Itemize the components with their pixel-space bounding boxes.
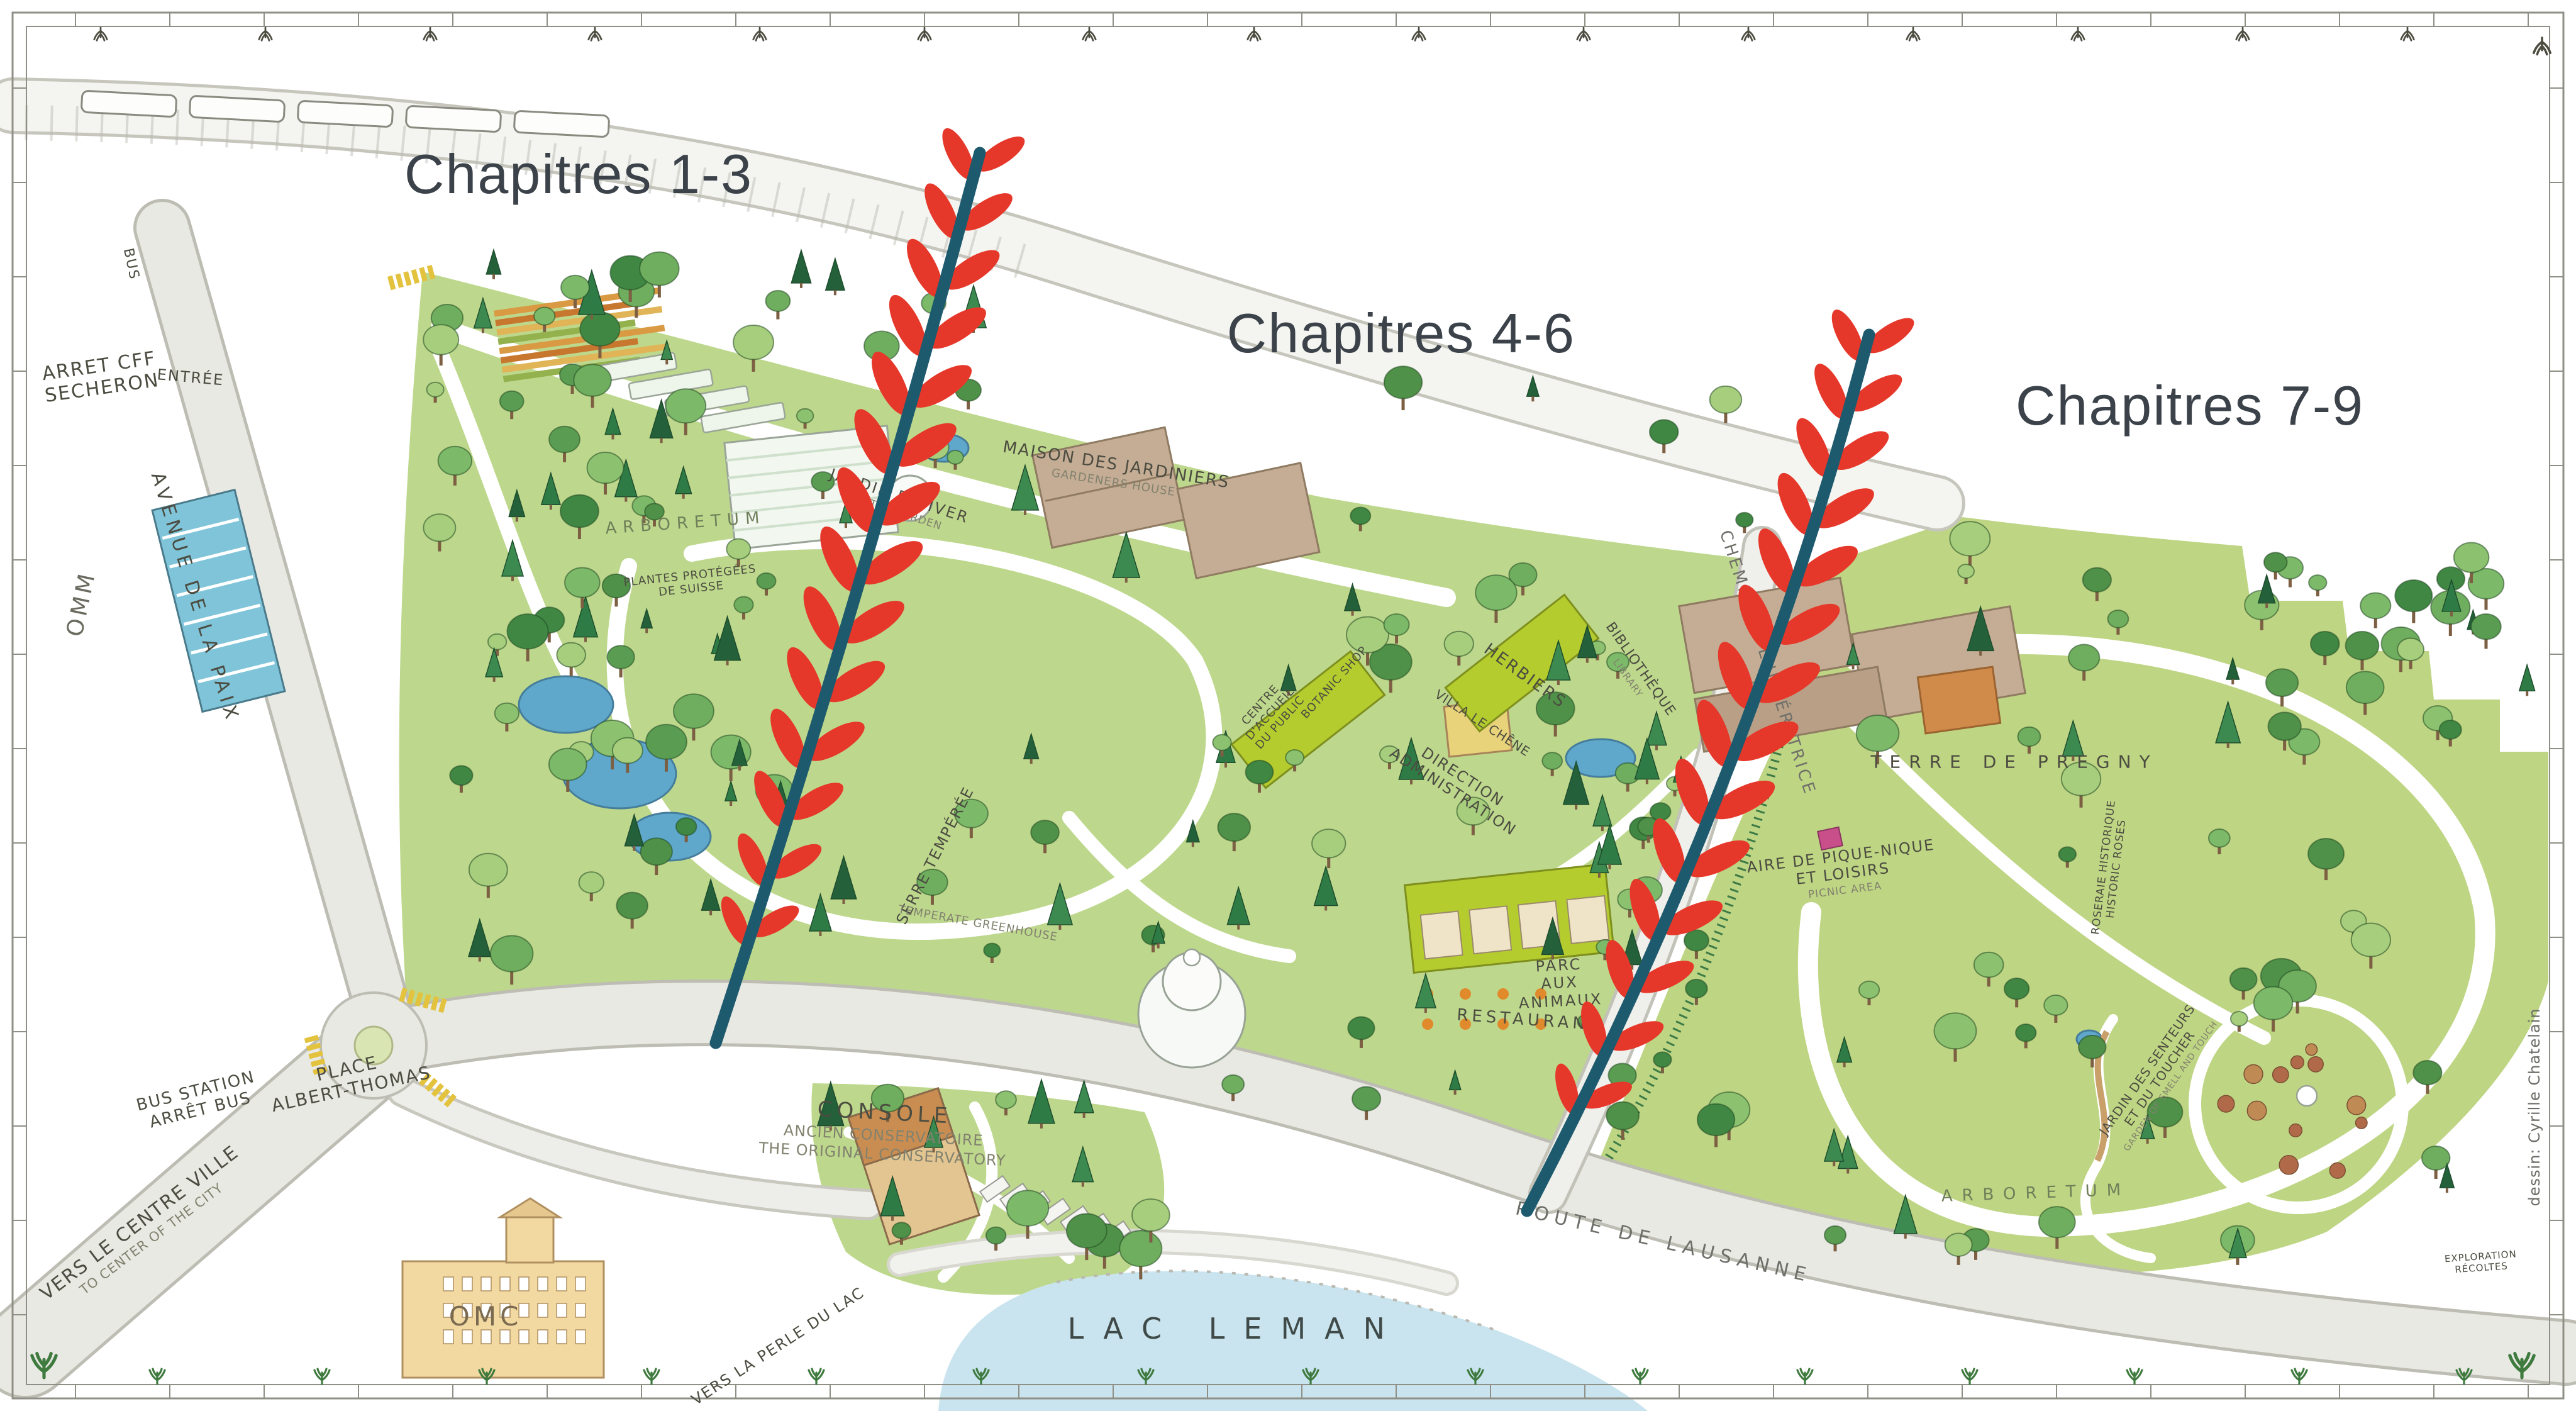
plant-sprig-icon <box>1633 1369 1648 1384</box>
plant-sprig-icon <box>589 28 601 40</box>
plant-sprig-icon <box>918 28 931 40</box>
plant-sprig-icon <box>2292 1369 2307 1384</box>
winter-garden-dome <box>887 476 933 521</box>
plant-sprig-icon <box>1962 1369 1977 1384</box>
roseraie-gazebo <box>2297 1086 2317 1106</box>
plant-sprig-icon <box>150 1369 165 1384</box>
plant-sprig-icon <box>2534 38 2550 54</box>
plant-sprig-icon <box>1083 28 1096 40</box>
plant-sprig-icon <box>314 1369 330 1384</box>
botanical-garden-map-page: ARRET CFFSECHERONBUSENTRÉEAVENUE DE LA P… <box>0 0 2576 1411</box>
plant-sprig-icon <box>1413 28 1425 40</box>
plant-sprig-icon <box>259 28 272 40</box>
plant-sprig-icon <box>2072 28 2084 40</box>
plant-sprig-icon <box>809 1369 824 1384</box>
building-orange-roof-villa <box>1918 667 2000 733</box>
plant-sprig-icon <box>1742 28 1755 40</box>
plant-sprig-icon <box>1797 1369 1813 1384</box>
building-jardin-d-hiver <box>724 426 898 549</box>
plant-sprig-icon <box>2401 28 2414 40</box>
plant-sprig-icon <box>644 1369 659 1384</box>
map-illustration <box>0 0 2576 1411</box>
plant-sprig-icon <box>424 28 436 40</box>
plant-sprig-icon <box>1907 28 1919 40</box>
building-omc <box>402 1198 604 1378</box>
plant-sprig-icon <box>1577 28 1590 40</box>
plant-sprig-icon <box>2127 1369 2142 1384</box>
plant-sprig-icon <box>2236 28 2249 40</box>
plant-sprig-icon <box>94 28 107 40</box>
plant-sprig-icon <box>1248 28 1260 40</box>
lake <box>938 1271 1648 1411</box>
plant-sprig-icon <box>753 28 766 40</box>
